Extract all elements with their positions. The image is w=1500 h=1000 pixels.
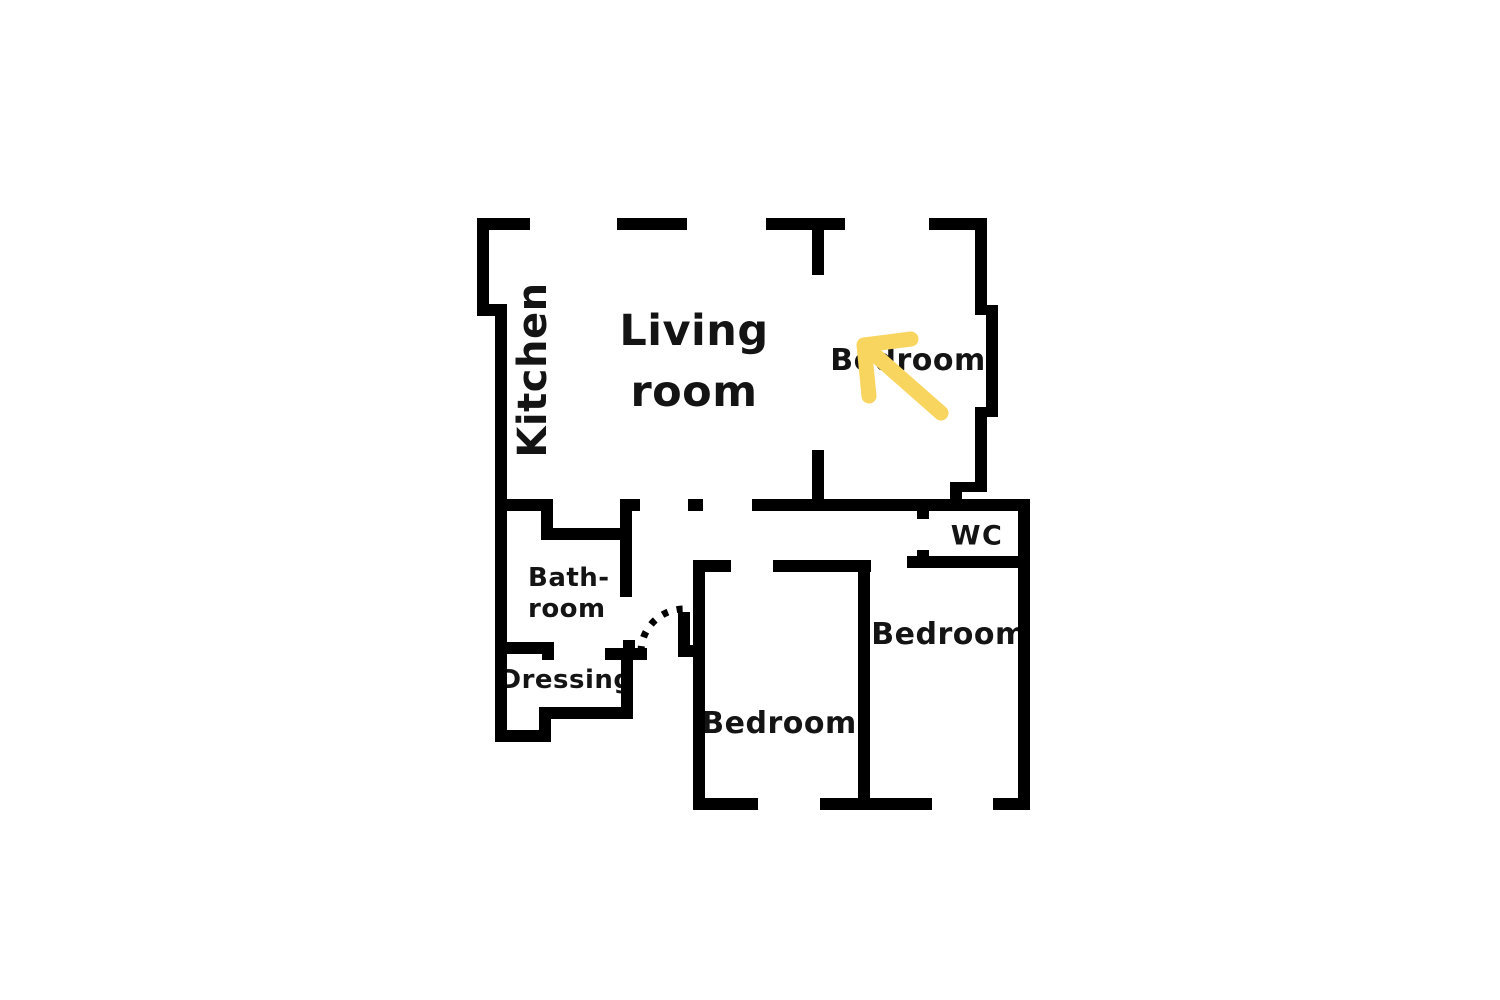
wall-segment [820, 798, 932, 810]
wall-segment [620, 499, 632, 597]
door-swing-arc [641, 609, 684, 652]
floorplan-drawing [0, 0, 1500, 1000]
wall-segment [693, 798, 758, 810]
wall-segment [477, 218, 530, 230]
room-label-wc: WC [951, 520, 1004, 551]
wall-segment [950, 482, 962, 511]
wall-segment [678, 645, 705, 657]
wall-segment [929, 218, 986, 230]
room-label-bedroom-top-right: Bedroom [830, 344, 985, 379]
wall-segment [975, 407, 998, 417]
wall-segment [678, 612, 690, 657]
room-label-bedroom-right: Bedroom [871, 618, 1026, 653]
wall-segment [917, 511, 929, 519]
wall-segment [541, 528, 632, 540]
wall-segment [623, 640, 635, 660]
wall-segment [620, 499, 640, 511]
wall-segment [1018, 499, 1030, 810]
wall-segment [539, 707, 551, 742]
wall-segment [541, 499, 553, 540]
wall-segment [766, 218, 845, 230]
wall-segment [858, 560, 870, 810]
wall-segment [495, 499, 553, 511]
wall-segment [752, 499, 1030, 511]
wall-segment [917, 550, 929, 556]
wall-segment [539, 707, 631, 719]
wall-segment [477, 218, 489, 316]
wall-segment [477, 304, 507, 316]
wall-segment [975, 407, 987, 492]
wall-segment [975, 218, 987, 315]
wall-segment [812, 450, 824, 511]
room-label-bathroom: Bath- room [528, 563, 610, 624]
wall-segment [812, 230, 824, 275]
wall-segment [693, 560, 705, 810]
room-label-kitchen: Kitchen [510, 282, 556, 457]
wall-segment [495, 642, 554, 654]
wall-segment [495, 730, 551, 742]
floorplan-canvas: Kitchen Living room Bedroom WC Bedroom B… [0, 0, 1500, 1000]
wall-segment [617, 218, 687, 230]
room-label-dressing: Dressing [499, 666, 632, 696]
room-label-bedroom-bottom: Bedroom [701, 707, 856, 742]
wall-segment [950, 482, 987, 492]
wall-segment [993, 798, 1030, 810]
wall-segment [688, 499, 703, 511]
wall-segment [907, 556, 1030, 568]
wall-segment [975, 305, 998, 315]
wall-segment [773, 560, 871, 572]
wall-segment [605, 648, 647, 660]
wall-segment [693, 560, 731, 572]
room-label-living-room: Living room [619, 301, 768, 423]
wall-segment [986, 305, 998, 417]
wall-segment [542, 642, 554, 660]
